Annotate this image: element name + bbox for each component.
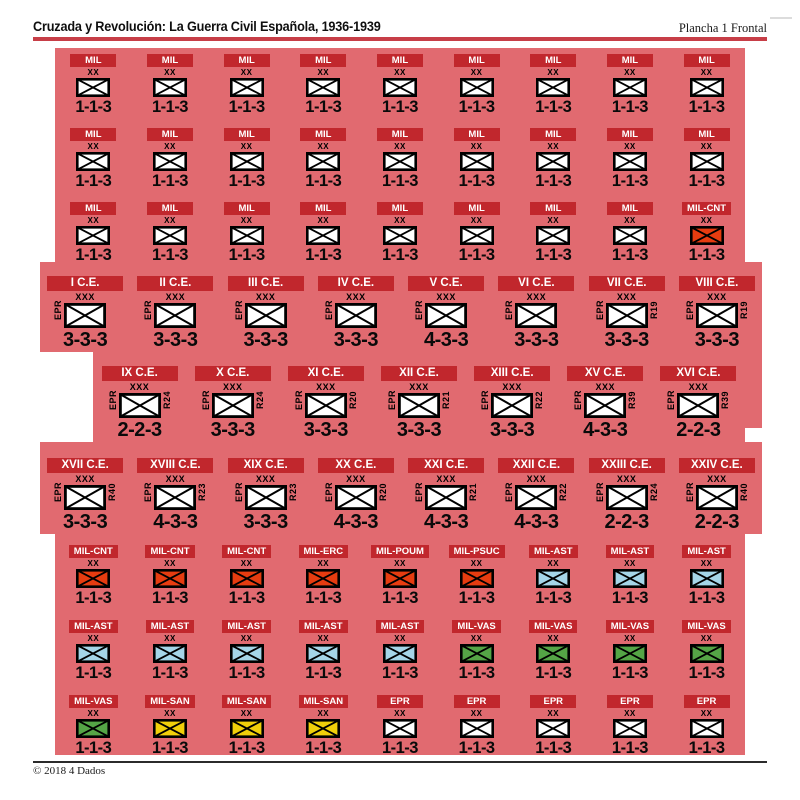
unit-type-banner: X C.E. [195,366,271,381]
unit-type-banner: MIL-CNT [145,545,194,558]
faction-label: EPR [142,295,154,325]
faction-label: EPR [594,477,606,507]
unit-type-banner: MIL [454,54,500,67]
combat-stats: 1-1-3 [459,589,495,607]
counter-i-c-e: I C.E.EPRXXX3-3-3 [41,276,129,351]
counter-mil-vas: MIL-VASXX1-1-3 [518,620,588,682]
counter-mil: MILXX1-1-3 [288,202,358,264]
echelon-label: XXX [502,382,522,392]
infantry-symbol-icon [690,78,724,97]
counter-xxiii-c-e: XXIII C.E.EPRXXXR242-2-3 [583,458,671,533]
unit-type-banner: MIL [300,202,346,215]
infantry-symbol-icon [76,644,110,663]
unit-type-banner: XIX C.E. [228,458,304,473]
ref-label: R40 [738,477,750,507]
combat-stats: 2-2-3 [676,419,720,441]
infantry-symbol-icon [153,719,187,738]
combat-stats: 3-3-3 [514,329,558,351]
unit-type-banner: MIL-VAS [682,620,730,633]
unit-type-banner: MIL-AST [682,545,731,558]
ref-label: R21 [467,477,479,507]
combat-stats: 1-1-3 [535,589,571,607]
unit-type-banner: XVII C.E. [47,458,123,473]
unit-type-banner: MIL [224,128,270,141]
unit-type-banner: XXIV C.E. [679,458,755,473]
combat-stats: 1-1-3 [75,739,111,757]
ref-label: R23 [196,477,208,507]
echelon-label: XX [164,634,176,643]
infantry-symbol-icon [76,78,110,97]
unit-type-banner: MIL [454,202,500,215]
combat-stats: 1-1-3 [305,664,341,682]
counter-mil-psuc: MIL-PSUCXX1-1-3 [442,545,512,607]
counter-epr: EPRXX1-1-3 [595,695,665,757]
infantry-symbol-icon [335,485,377,510]
echelon-label: XX [241,216,253,225]
ref-label [377,295,389,325]
counter-mil-cnt: MIL-CNTXX1-1-3 [135,545,205,607]
unit-type-banner: MIL-VAS [606,620,654,633]
echelon-label: XX [394,216,406,225]
unit-type-banner: MIL-SAN [145,695,195,708]
counter-mil: MILXX1-1-3 [595,202,665,264]
unit-type-banner: XXI C.E. [408,458,484,473]
infantry-symbol-icon [536,719,570,738]
counter-mil: MILXX1-1-3 [442,128,512,190]
unit-type-banner: MIL [377,54,423,67]
echelon-label: XX [87,68,99,77]
infantry-symbol-icon [383,719,417,738]
counter-mil: MILXX1-1-3 [365,54,435,116]
unit-type-banner: MIL-POUM [371,545,429,558]
unit-type-banner: MIL [530,128,576,141]
faction-label: EPR [293,385,305,415]
infantry-symbol-icon [76,569,110,588]
echelon-label: XXX [689,382,709,392]
echelon-label: XXX [256,292,276,302]
unit-type-banner: MIL-AST [146,620,195,633]
unit-type-banner: XXII C.E. [498,458,574,473]
echelon-label: XX [624,68,636,77]
echelon-label: XX [394,142,406,151]
ref-label: R24 [648,477,660,507]
combat-stats: 4-3-3 [334,511,378,533]
counter-mil-ast: MIL-ASTXX1-1-3 [58,620,128,682]
infantry-symbol-icon [119,393,161,418]
counter-xii-c-e: XII C.E.EPRXXXR213-3-3 [375,366,463,441]
infantry-symbol-icon [536,644,570,663]
infantry-symbol-icon [383,152,417,171]
crop-mark [770,17,792,19]
echelon-label: XX [87,709,99,718]
unit-type-banner: MIL-CNT [222,545,271,558]
echelon-label: XX [87,216,99,225]
unit-type-banner: IV C.E. [318,276,394,291]
counter-xxii-c-e: XXII C.E.EPRXXXR224-3-3 [492,458,580,533]
infantry-symbol-icon [613,78,647,97]
unit-type-banner: XVI C.E. [660,366,736,381]
counter-mil-vas: MIL-VASXX1-1-3 [442,620,512,682]
combat-stats: 1-1-3 [382,172,418,190]
unit-type-banner: MIL [607,202,653,215]
combat-stats: 3-3-3 [244,329,288,351]
counter-mil: MILXX1-1-3 [58,54,128,116]
infantry-symbol-icon [677,393,719,418]
combat-stats: 1-1-3 [535,172,571,190]
echelon-label: XX [471,709,483,718]
infantry-symbol-icon [76,152,110,171]
counter-ii-c-e: II C.E.EPRXXX3-3-3 [131,276,219,351]
infantry-symbol-icon [460,78,494,97]
unit-type-banner: MIL [377,128,423,141]
infantry-symbol-icon [230,569,264,588]
infantry-symbol-icon [460,152,494,171]
counter-mil: MILXX1-1-3 [595,54,665,116]
infantry-symbol-icon [536,226,570,245]
infantry-symbol-icon [64,303,106,328]
ref-label [196,295,208,325]
infantry-symbol-icon [515,485,557,510]
unit-type-banner: MIL-PSUC [449,545,505,558]
counter-row: IX C.E.EPRXXXR242-2-3X C.E.EPRXXXR243-3-… [93,366,745,441]
unit-type-banner: XII C.E. [381,366,457,381]
echelon-label: XX [701,68,713,77]
infantry-symbol-icon [76,226,110,245]
combat-stats: 1-1-3 [459,98,495,116]
unit-type-banner: MIL [684,128,730,141]
combat-stats: 3-3-3 [153,329,197,351]
echelon-label: XX [624,709,636,718]
combat-stats: 1-1-3 [612,172,648,190]
counter-xvi-c-e: XVI C.E.EPRXXXR392-2-3 [654,366,742,441]
counter-mil: MILXX1-1-3 [365,202,435,264]
echelon-label: XX [701,216,713,225]
combat-stats: 1-1-3 [535,664,571,682]
infantry-symbol-icon [245,303,287,328]
counter-vii-c-e: VII C.E.EPRXXXR193-3-3 [583,276,671,351]
unit-type-banner: MIL-VAS [69,695,117,708]
counter-row: XVII C.E.EPRXXXR403-3-3XVIII C.E.EPRXXXR… [40,458,762,533]
unit-type-banner: MIL [224,54,270,67]
echelon-label: XX [547,216,559,225]
echelon-label: XX [701,142,713,151]
echelon-label: XX [471,142,483,151]
counter-row: MIL-ASTXX1-1-3MIL-ASTXX1-1-3MIL-ASTXX1-1… [55,620,745,682]
echelon-label: XX [394,68,406,77]
combat-stats: 1-1-3 [305,172,341,190]
unit-type-banner: V C.E. [408,276,484,291]
echelon-label: XX [241,142,253,151]
unit-type-banner: MIL [147,54,193,67]
echelon-label: XXX [130,382,150,392]
combat-stats: 1-1-3 [152,98,188,116]
counter-xxi-c-e: XXI C.E.EPRXXXR214-3-3 [402,458,490,533]
echelon-label: XX [317,142,329,151]
infantry-symbol-icon [245,485,287,510]
echelon-label: XXX [527,474,547,484]
counter-mil: MILXX1-1-3 [442,54,512,116]
counter-mil-vas: MIL-VASXX1-1-3 [672,620,742,682]
counter-xix-c-e: XIX C.E.EPRXXXR233-3-3 [222,458,310,533]
faction-label: EPR [665,385,677,415]
combat-stats: 1-1-3 [382,739,418,757]
echelon-label: XX [241,68,253,77]
counter-mil-ast: MIL-ASTXX1-1-3 [595,545,665,607]
combat-stats: 1-1-3 [689,589,725,607]
infantry-symbol-icon [383,226,417,245]
combat-stats: 4-3-3 [514,511,558,533]
unit-type-banner: XI C.E. [288,366,364,381]
unit-type-banner: MIL-AST [299,620,348,633]
infantry-symbol-icon [690,644,724,663]
infantry-symbol-icon [613,644,647,663]
combat-stats: 1-1-3 [229,98,265,116]
counter-mil-ast: MIL-ASTXX1-1-3 [212,620,282,682]
echelon-label: XX [471,559,483,568]
unit-type-banner: MIL [530,54,576,67]
echelon-label: XX [471,68,483,77]
infantry-symbol-icon [460,226,494,245]
combat-stats: 1-1-3 [152,739,188,757]
combat-stats: 4-3-3 [424,511,468,533]
echelon-label: XX [624,559,636,568]
combat-stats: 3-3-3 [334,329,378,351]
combat-stats: 3-3-3 [244,511,288,533]
faction-label: EPR [142,477,154,507]
combat-stats: 1-1-3 [459,246,495,264]
counter-mil: MILXX1-1-3 [135,202,205,264]
combat-stats: 1-1-3 [382,664,418,682]
infantry-symbol-icon [230,78,264,97]
infantry-symbol-icon [230,226,264,245]
counter-mil: MILXX1-1-3 [672,54,742,116]
faction-label: EPR [233,295,245,325]
unit-type-banner: MIL-CNT [69,545,118,558]
combat-stats: 3-3-3 [63,329,107,351]
echelon-label: XX [624,142,636,151]
counter-mil-san: MIL-SANXX1-1-3 [135,695,205,757]
faction-label: EPR [413,295,425,325]
echelon-label: XXX [409,382,429,392]
combat-stats: 1-1-3 [689,98,725,116]
ref-label: R24 [161,385,173,415]
faction-label: EPR [323,477,335,507]
counter-mil: MILXX1-1-3 [288,54,358,116]
counter-sheet-page: Cruzada y Revolución: La Guerra Civil Es… [0,0,800,800]
counter-epr: EPRXX1-1-3 [518,695,588,757]
sheet-title: Cruzada y Revolución: La Guerra Civil Es… [33,19,381,34]
combat-stats: 1-1-3 [305,589,341,607]
infantry-symbol-icon [153,226,187,245]
counter-mil-ast: MIL-ASTXX1-1-3 [288,620,358,682]
unit-type-banner: MIL-AST [529,545,578,558]
echelon-label: XX [394,709,406,718]
combat-stats: 1-1-3 [75,664,111,682]
infantry-symbol-icon [613,226,647,245]
echelon-label: XX [394,559,406,568]
echelon-label: XXX [166,292,186,302]
ref-label: R40 [106,477,118,507]
counter-mil: MILXX1-1-3 [365,128,435,190]
header-rule [33,37,767,41]
faction-label: EPR [503,477,515,507]
echelon-label: XX [701,634,713,643]
ref-label: R21 [440,385,452,415]
unit-type-banner: MIL [300,54,346,67]
counter-xxiv-c-e: XXIV C.E.EPRXXXR402-2-3 [673,458,761,533]
unit-type-banner: MIL [454,128,500,141]
faction-label: EPR [479,385,491,415]
combat-stats: 1-1-3 [459,172,495,190]
combat-stats: 1-1-3 [459,664,495,682]
counter-xv-c-e: XV C.E.EPRXXXR394-3-3 [561,366,649,441]
combat-stats: 1-1-3 [152,172,188,190]
counter-xvii-c-e: XVII C.E.EPRXXXR403-3-3 [41,458,129,533]
faction-label: EPR [233,477,245,507]
sheet-number-label: Plancha 1 Frontal [679,21,767,36]
infantry-symbol-icon [383,644,417,663]
unit-type-banner: XXIII C.E. [589,458,665,473]
counter-row: MILXX1-1-3MILXX1-1-3MILXX1-1-3MILXX1-1-3… [55,202,745,264]
infantry-symbol-icon [536,78,570,97]
ref-label [287,295,299,325]
combat-stats: 1-1-3 [305,739,341,757]
infantry-symbol-icon [606,303,648,328]
infantry-symbol-icon [690,569,724,588]
counter-mil-cnt: MIL-CNTXX1-1-3 [672,202,742,264]
combat-stats: 1-1-3 [152,589,188,607]
echelon-label: XX [394,634,406,643]
echelon-label: XX [624,634,636,643]
unit-type-banner: VI C.E. [498,276,574,291]
echelon-label: XX [164,216,176,225]
infantry-symbol-icon [153,569,187,588]
ref-label: R39 [626,385,638,415]
echelon-label: XX [164,559,176,568]
echelon-label: XX [471,216,483,225]
faction-label: EPR [684,295,696,325]
faction-label: EPR [52,295,64,325]
unit-type-banner: XV C.E. [567,366,643,381]
echelon-label: XXX [436,292,456,302]
faction-label: EPR [323,295,335,325]
faction-label: EPR [572,385,584,415]
infantry-symbol-icon [154,485,196,510]
combat-stats: 1-1-3 [535,739,571,757]
counter-viii-c-e: VIII C.E.EPRXXXR193-3-3 [673,276,761,351]
infantry-symbol-icon [76,719,110,738]
unit-type-banner: MIL [300,128,346,141]
infantry-symbol-icon [515,303,557,328]
counter-x-c-e: X C.E.EPRXXXR243-3-3 [189,366,277,441]
echelon-label: XXX [707,474,727,484]
combat-stats: 1-1-3 [382,246,418,264]
unit-type-banner: MIL [607,54,653,67]
echelon-label: XXX [596,382,616,392]
combat-stats: 1-1-3 [305,98,341,116]
combat-stats: 1-1-3 [612,739,648,757]
echelon-label: XX [241,709,253,718]
infantry-symbol-icon [613,152,647,171]
infantry-symbol-icon [690,226,724,245]
echelon-label: XXX [436,474,456,484]
counter-mil: MILXX1-1-3 [288,128,358,190]
combat-stats: 2-2-3 [695,511,739,533]
counter-v-c-e: V C.E.EPRXXX4-3-3 [402,276,490,351]
infantry-symbol-icon [536,152,570,171]
combat-stats: 3-3-3 [695,329,739,351]
counter-xi-c-e: XI C.E.EPRXXXR203-3-3 [282,366,370,441]
combat-stats: 1-1-3 [382,98,418,116]
ref-label [557,295,569,325]
infantry-symbol-icon [606,485,648,510]
combat-stats: 1-1-3 [612,98,648,116]
infantry-symbol-icon [153,644,187,663]
combat-stats: 1-1-3 [305,246,341,264]
combat-stats: 1-1-3 [689,172,725,190]
counter-mil-cnt: MIL-CNTXX1-1-3 [212,545,282,607]
counter-mil-san: MIL-SANXX1-1-3 [212,695,282,757]
echelon-label: XX [317,216,329,225]
combat-stats: 1-1-3 [75,172,111,190]
echelon-label: XX [87,634,99,643]
ref-label: R39 [719,385,731,415]
counter-ix-c-e: IX C.E.EPRXXXR242-2-3 [96,366,184,441]
counter-epr: EPRXX1-1-3 [442,695,512,757]
combat-stats: 1-1-3 [612,589,648,607]
combat-stats: 1-1-3 [75,589,111,607]
unit-type-banner: MIL [530,202,576,215]
copyright-text: © 2018 4 Dados [33,765,105,777]
counter-row: MILXX1-1-3MILXX1-1-3MILXX1-1-3MILXX1-1-3… [55,128,745,190]
counter-mil: MILXX1-1-3 [212,128,282,190]
unit-type-banner: MIL-AST [376,620,425,633]
echelon-label: XX [241,559,253,568]
combat-stats: 3-3-3 [397,419,441,441]
combat-stats: 1-1-3 [75,246,111,264]
echelon-label: XXX [75,292,95,302]
counter-mil-erc: MIL-ERCXX1-1-3 [288,545,358,607]
unit-type-banner: MIL [377,202,423,215]
unit-type-banner: MIL-CNT [682,202,731,215]
unit-type-banner: MIL-SAN [299,695,349,708]
echelon-label: XX [547,68,559,77]
counter-iv-c-e: IV C.E.EPRXXX3-3-3 [312,276,400,351]
unit-type-banner: MIL-SAN [222,695,272,708]
sheet-edge-notch [745,428,762,442]
unit-type-banner: III C.E. [228,276,304,291]
counter-mil-poum: MIL-POUMXX1-1-3 [365,545,435,607]
ref-label: R24 [254,385,266,415]
counter-mil: MILXX1-1-3 [518,128,588,190]
echelon-label: XXX [617,292,637,302]
counter-row: MILXX1-1-3MILXX1-1-3MILXX1-1-3MILXX1-1-3… [55,54,745,116]
counter-row: MIL-CNTXX1-1-3MIL-CNTXX1-1-3MIL-CNTXX1-1… [55,545,745,607]
echelon-label: XXX [166,474,186,484]
combat-stats: 1-1-3 [75,98,111,116]
counter-vi-c-e: VI C.E.EPRXXX3-3-3 [492,276,580,351]
counter-mil: MILXX1-1-3 [212,202,282,264]
combat-stats: 4-3-3 [153,511,197,533]
counter-epr: EPRXX1-1-3 [672,695,742,757]
unit-type-banner: XIII C.E. [474,366,550,381]
unit-type-banner: I C.E. [47,276,123,291]
counter-epr: EPRXX1-1-3 [365,695,435,757]
infantry-symbol-icon [153,152,187,171]
infantry-symbol-icon [306,569,340,588]
counter-mil: MILXX1-1-3 [442,202,512,264]
unit-type-banner: IX C.E. [102,366,178,381]
